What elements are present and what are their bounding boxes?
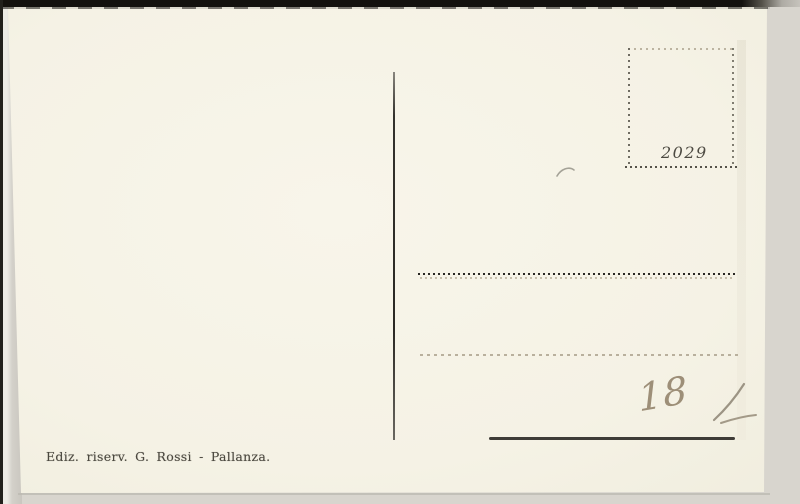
stamp-box-border-left <box>628 48 630 167</box>
postcard-scan: 2029 Ediz. riserv. G. Rossi - Pallanza. … <box>0 0 800 504</box>
postcard-back <box>0 0 800 504</box>
center-divider-line <box>393 72 395 440</box>
address-line-2 <box>420 354 738 356</box>
address-solid-line <box>489 437 735 440</box>
scan-left-border <box>0 0 3 504</box>
stamp-box-border-bottom <box>625 166 740 168</box>
address-line-1 <box>418 273 738 275</box>
stamp-box-border-right <box>732 48 734 167</box>
address-line-1-ghost <box>420 277 734 279</box>
paper-smudge <box>737 40 746 440</box>
card-bottom-edge-shadow <box>18 493 770 495</box>
stamp-box-border-top <box>628 48 734 50</box>
handwritten-price-note: 18 <box>637 368 690 421</box>
scan-top-border <box>0 0 800 7</box>
stamp-box-number: 2029 <box>661 143 708 162</box>
publisher-imprint: Ediz. riserv. G. Rossi - Pallanza. <box>46 449 270 464</box>
scan-top-border-ragged-edge <box>0 7 770 9</box>
